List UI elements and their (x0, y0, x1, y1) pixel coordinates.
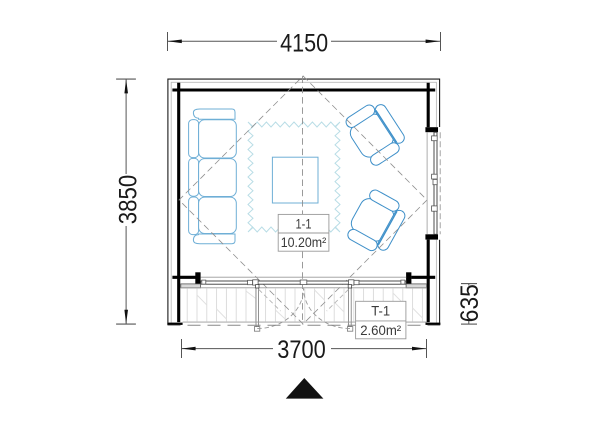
svg-text:3700: 3700 (277, 336, 326, 364)
svg-text:T-1: T-1 (371, 303, 390, 319)
svg-text:4150: 4150 (280, 29, 328, 57)
svg-text:3850: 3850 (115, 175, 143, 225)
svg-text:635: 635 (456, 284, 484, 322)
svg-text:2.60m²: 2.60m² (360, 322, 401, 338)
svg-text:10.20m²: 10.20m² (281, 234, 327, 250)
svg-text:1-1: 1-1 (296, 216, 312, 232)
